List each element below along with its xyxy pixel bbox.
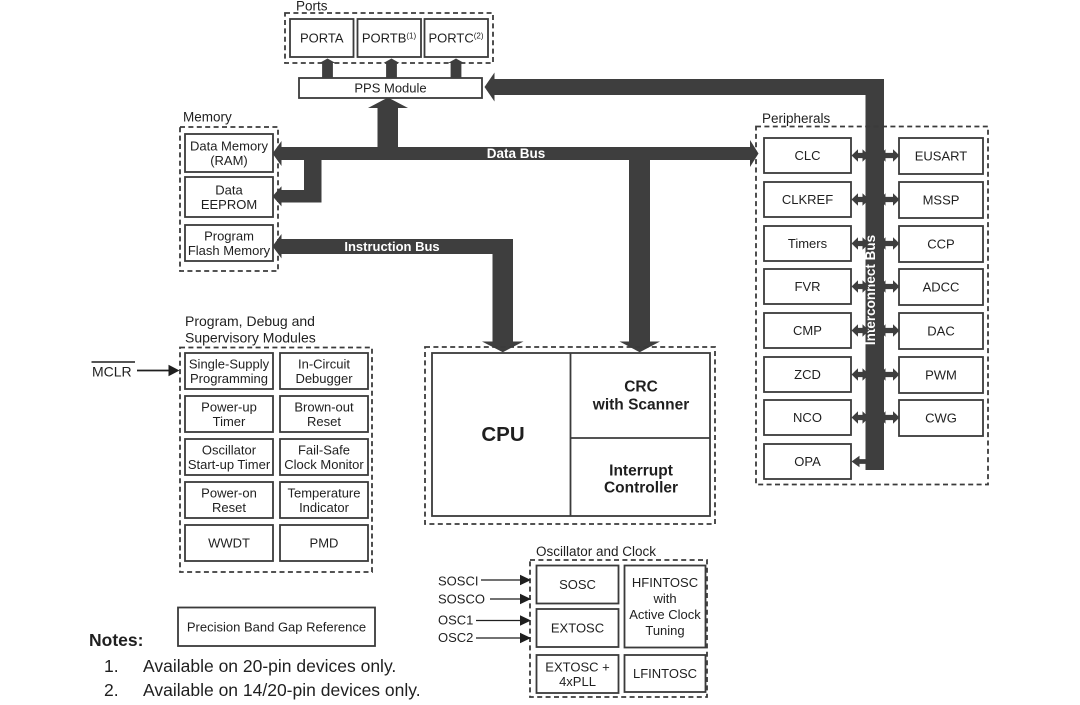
svg-text:LFINTOSC: LFINTOSC <box>633 666 697 681</box>
svg-text:OPA: OPA <box>794 454 821 469</box>
svg-text:Program, Debug and: Program, Debug and <box>185 313 315 329</box>
svg-text:Clock Monitor: Clock Monitor <box>284 457 364 472</box>
svg-text:NCO: NCO <box>793 410 822 425</box>
svg-text:ADCC: ADCC <box>923 280 960 295</box>
svg-text:Fail-Safe: Fail-Safe <box>298 442 350 457</box>
svg-text:PORTA: PORTA <box>300 31 344 46</box>
svg-text:Flash Memory: Flash Memory <box>188 243 271 258</box>
svg-text:EEPROM: EEPROM <box>201 197 257 212</box>
svg-text:PPS Module: PPS Module <box>354 81 426 96</box>
svg-text:Indicator: Indicator <box>299 500 350 515</box>
svg-text:CLKREF: CLKREF <box>782 192 833 207</box>
svg-text:Memory: Memory <box>183 110 232 125</box>
svg-text:Reset: Reset <box>307 414 341 429</box>
svg-text:OSC2: OSC2 <box>438 630 473 645</box>
svg-text:ZCD: ZCD <box>794 367 821 382</box>
svg-text:Start-up Timer: Start-up Timer <box>188 457 271 472</box>
svg-text:Active Clock: Active Clock <box>629 607 701 622</box>
svg-text:Power-up: Power-up <box>201 399 257 414</box>
svg-text:Precision Band Gap Reference: Precision Band Gap Reference <box>187 619 366 634</box>
svg-text:Oscillator: Oscillator <box>202 442 257 457</box>
svg-text:Data: Data <box>215 182 243 197</box>
svg-text:1.: 1. <box>104 656 119 676</box>
svg-text:PMD: PMD <box>310 536 339 551</box>
svg-text:with Scanner: with Scanner <box>592 397 689 414</box>
svg-text:Temperature: Temperature <box>288 485 361 500</box>
svg-text:Data Memory: Data Memory <box>190 138 269 153</box>
svg-text:SOSC: SOSC <box>559 577 596 592</box>
svg-text:FVR: FVR <box>795 279 821 294</box>
svg-text:Interrupt: Interrupt <box>609 463 673 480</box>
svg-text:Peripherals: Peripherals <box>762 111 831 126</box>
svg-text:(RAM): (RAM) <box>210 153 248 168</box>
svg-text:DAC: DAC <box>927 324 954 339</box>
svg-text:Program: Program <box>204 228 254 243</box>
svg-text:Single-Supply: Single-Supply <box>189 356 270 371</box>
svg-text:Data Bus: Data Bus <box>487 146 546 161</box>
svg-text:WWDT: WWDT <box>208 536 250 551</box>
svg-text:Supervisory Modules: Supervisory Modules <box>185 330 316 346</box>
svg-text:Tuning: Tuning <box>645 623 684 638</box>
svg-text:CCP: CCP <box>927 237 954 252</box>
svg-text:SOSCI: SOSCI <box>438 574 478 589</box>
svg-text:CLC: CLC <box>794 148 820 163</box>
svg-text:MSSP: MSSP <box>923 193 960 208</box>
svg-text:PWM: PWM <box>925 368 957 383</box>
svg-text:Available on 20-pin devices on: Available on 20-pin devices only. <box>143 656 396 676</box>
svg-text:OSC1: OSC1 <box>438 613 473 628</box>
svg-text:Available on 14/20-pin devices: Available on 14/20-pin devices only. <box>143 680 421 700</box>
svg-text:Instruction Bus: Instruction Bus <box>344 239 439 254</box>
svg-text:Debugger: Debugger <box>295 371 353 386</box>
svg-text:Power-on: Power-on <box>201 485 257 500</box>
svg-text:Programming: Programming <box>190 371 268 386</box>
svg-text:HFINTOSC: HFINTOSC <box>632 575 698 590</box>
svg-text:MCLR: MCLR <box>92 364 132 380</box>
svg-text:Timers: Timers <box>788 236 828 251</box>
svg-text:with: with <box>652 591 676 606</box>
svg-text:CRC: CRC <box>624 379 658 396</box>
svg-text:2.: 2. <box>104 680 119 700</box>
svg-text:Ports: Ports <box>296 0 328 14</box>
svg-text:SOSCO: SOSCO <box>438 592 485 607</box>
svg-text:EXTOSC: EXTOSC <box>551 621 604 636</box>
svg-text:Notes:: Notes: <box>89 630 143 650</box>
svg-text:Timer: Timer <box>213 414 246 429</box>
svg-text:Reset: Reset <box>212 500 246 515</box>
svg-text:CWG: CWG <box>925 411 957 426</box>
svg-text:In-Circuit: In-Circuit <box>298 356 350 371</box>
svg-text:Controller: Controller <box>604 480 678 497</box>
svg-text:Oscillator and Clock: Oscillator and Clock <box>536 544 656 559</box>
svg-text:CPU: CPU <box>481 423 524 446</box>
svg-text:CMP: CMP <box>793 323 822 338</box>
svg-text:Brown-out: Brown-out <box>294 399 354 414</box>
svg-text:EUSART: EUSART <box>915 149 968 164</box>
svg-text:EXTOSC +: EXTOSC + <box>545 659 609 674</box>
svg-text:4xPLL: 4xPLL <box>559 674 596 689</box>
